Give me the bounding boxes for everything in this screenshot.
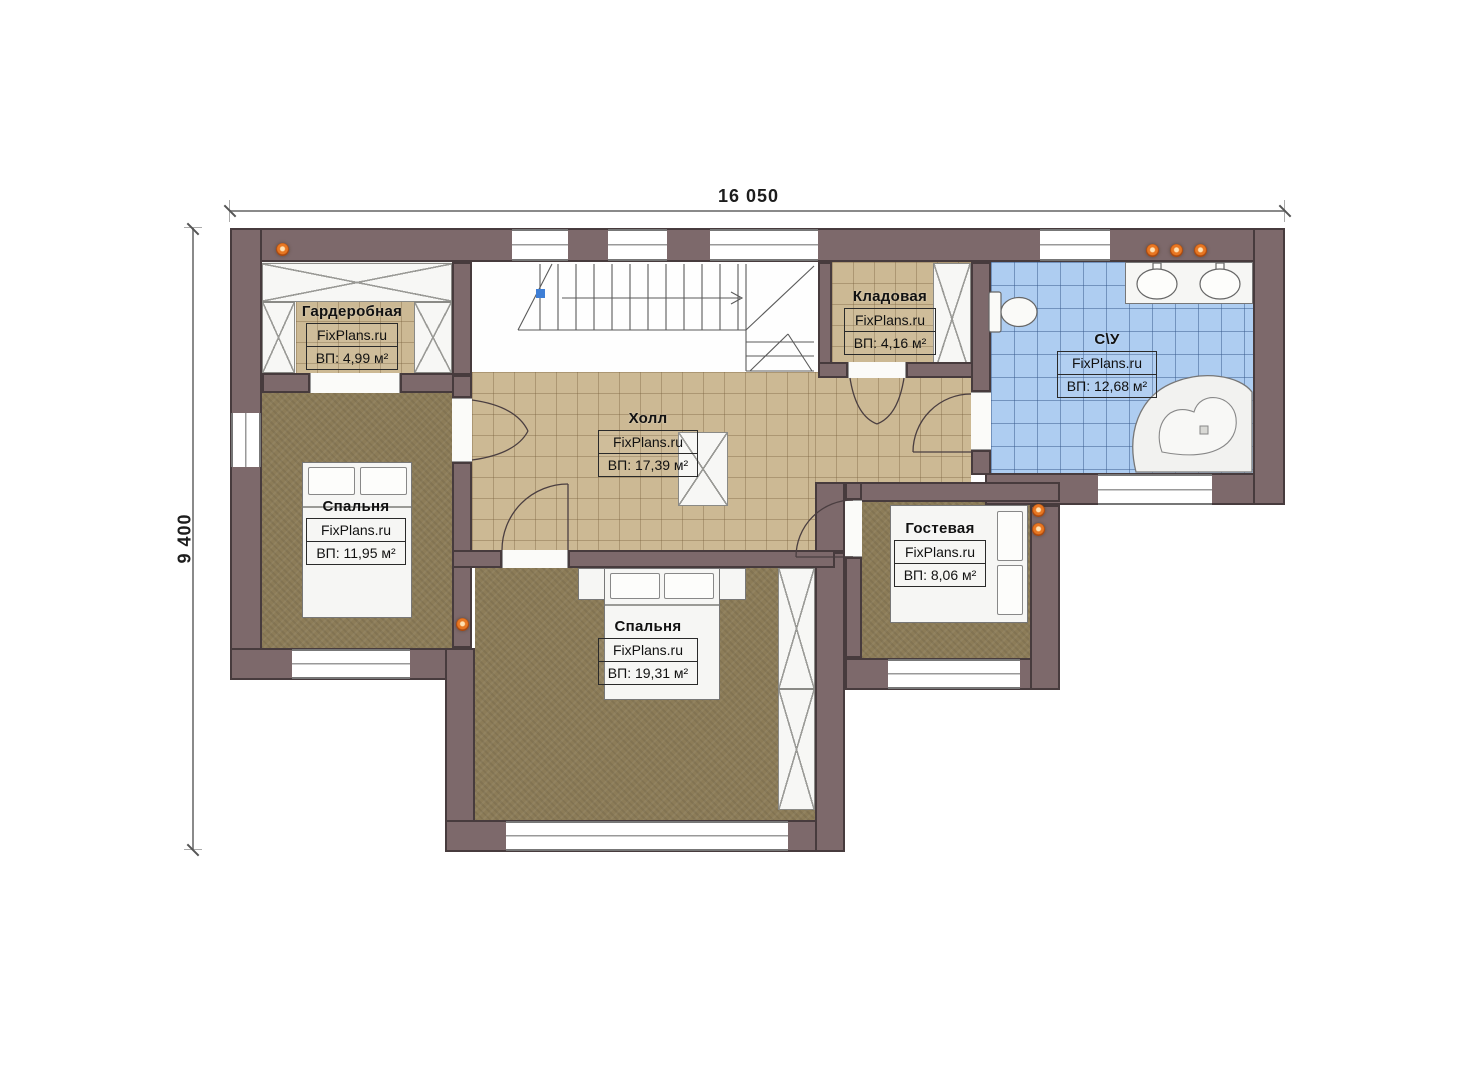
toilet-icon [989,292,1037,332]
room-label-bedroom2: Спальня FixPlans.ru ВП: 19,31 м² [563,618,733,685]
room-area: ВП: 17,39 м² [599,454,697,476]
spotlight [1032,523,1045,536]
spotlight [1146,244,1159,257]
watermark: FixPlans.ru [307,324,398,347]
dimension-width-label: 16 050 [718,186,779,207]
room-label-bathroom: С\У FixPlans.ru ВП: 12,68 м² [1022,331,1192,398]
watermark: FixPlans.ru [307,519,404,542]
room-name: Холл [629,410,668,427]
plan-linework [0,0,1474,1080]
dimension-height-label: 9 400 [175,513,196,563]
room-name: Спальня [615,618,682,635]
room-info-box: FixPlans.ru ВП: 12,68 м² [1057,351,1157,398]
room-area: ВП: 12,68 м² [1058,375,1156,397]
room-label-guest: Гостевая FixPlans.ru ВП: 8,06 м² [855,520,1025,587]
floor-plan: 16 050 9 400 [0,0,1474,1080]
room-label-hall: Холл FixPlans.ru ВП: 17,39 м² [563,410,733,477]
dimension-line-top [230,210,1285,212]
staircase [518,264,814,371]
room-info-box: FixPlans.ru ВП: 4,16 м² [844,308,937,355]
watermark: FixPlans.ru [1058,352,1156,375]
room-area: ВП: 4,99 м² [307,347,398,369]
room-info-box: FixPlans.ru ВП: 11,95 м² [306,518,405,565]
room-name: Гардеробная [302,303,402,320]
sink-icons [1137,263,1240,299]
room-area: ВП: 11,95 м² [307,542,404,564]
room-area: ВП: 4,16 м² [845,332,936,354]
spotlight [456,618,469,631]
spotlight [1032,504,1045,517]
room-info-box: FixPlans.ru ВП: 8,06 м² [894,540,987,587]
room-name: С\У [1094,331,1119,348]
room-name: Гостевая [905,520,974,537]
room-area: ВП: 8,06 м² [895,564,986,586]
room-area: ВП: 19,31 м² [599,662,697,684]
room-info-box: FixPlans.ru ВП: 4,99 м² [306,323,399,370]
room-info-box: FixPlans.ru ВП: 19,31 м² [598,638,698,685]
spotlight [1170,244,1183,257]
room-label-bedroom1: Спальня FixPlans.ru ВП: 11,95 м² [271,498,441,565]
stair-break-marker [536,289,545,298]
watermark: FixPlans.ru [599,639,697,662]
watermark: FixPlans.ru [599,431,697,454]
room-info-box: FixPlans.ru ВП: 17,39 м² [598,430,698,477]
spotlight [276,243,289,256]
spotlight [1194,244,1207,257]
room-name: Спальня [323,498,390,515]
watermark: FixPlans.ru [845,309,936,332]
room-name: Кладовая [853,288,927,305]
room-label-wardrobe: Гардеробная FixPlans.ru ВП: 4,99 м² [267,303,437,370]
room-label-storage: Кладовая FixPlans.ru ВП: 4,16 м² [805,288,975,355]
watermark: FixPlans.ru [895,541,986,564]
